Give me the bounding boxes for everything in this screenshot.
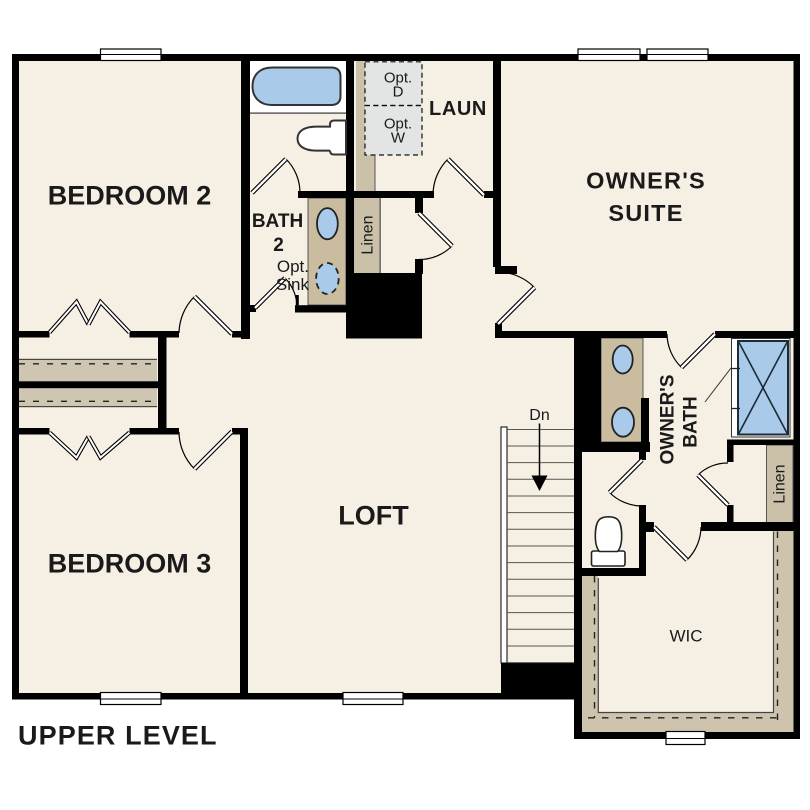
- svg-text:BEDROOM 3: BEDROOM 3: [48, 549, 212, 579]
- svg-text:BATH: BATH: [681, 396, 702, 447]
- svg-text:BEDROOM 2: BEDROOM 2: [48, 181, 212, 211]
- svg-text:OWNER'S: OWNER'S: [658, 374, 679, 464]
- svg-text:2: 2: [273, 235, 284, 256]
- svg-text:UPPER LEVEL: UPPER LEVEL: [18, 721, 218, 751]
- svg-text:SUITE: SUITE: [608, 200, 683, 226]
- svg-text:LAUN: LAUN: [429, 98, 487, 120]
- svg-text:BATH: BATH: [252, 211, 303, 232]
- svg-text:D: D: [393, 84, 404, 101]
- svg-text:Opt.: Opt.: [277, 257, 309, 276]
- svg-text:Dn: Dn: [529, 407, 549, 424]
- svg-text:Sink: Sink: [276, 275, 310, 294]
- svg-text:Linen: Linen: [360, 215, 377, 254]
- svg-text:LOFT: LOFT: [338, 501, 409, 531]
- svg-text:OWNER'S: OWNER'S: [586, 168, 706, 194]
- svg-text:WIC: WIC: [669, 627, 702, 646]
- svg-text:Linen: Linen: [772, 464, 789, 503]
- svg-text:W: W: [391, 130, 406, 147]
